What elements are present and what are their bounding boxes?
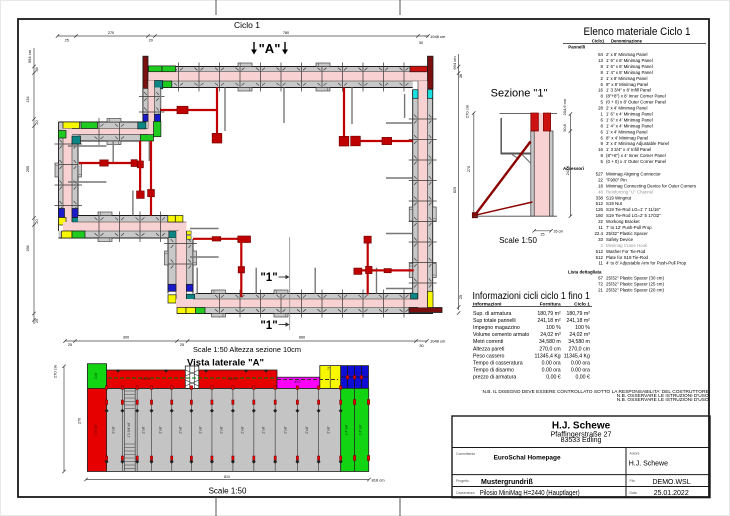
svg-text:S19 Tie-Rod LG=2' 5 17/32": S19 Tie-Rod LG=2' 5 17/32" xyxy=(606,213,661,218)
svg-text:16: 16 xyxy=(598,88,603,93)
svg-text:Metri correnti: Metri correnti xyxy=(473,339,503,345)
svg-text:527: 527 xyxy=(596,172,604,177)
svg-text:816 cm: 816 cm xyxy=(372,477,386,482)
svg-text:11: 11 xyxy=(598,225,603,230)
svg-text:"F900" Pin: "F900" Pin xyxy=(606,177,627,182)
svg-text:1048 cm: 1048 cm xyxy=(430,34,446,39)
svg-text:4' to 8' Adjustable Arm for Pu: 4' to 8' Adjustable Arm for Push-Pull Pr… xyxy=(606,261,687,266)
svg-text:0.00 ora: 0.00 ora xyxy=(571,367,590,373)
svg-text:1' 3 3/4" x 8' Infill Panel: 1' 3 3/4" x 8' Infill Panel xyxy=(606,88,651,93)
svg-text:Minimag Crane Hook: Minimag Crane Hook xyxy=(606,243,648,248)
svg-text:1'4"x8': 1'4"x8' xyxy=(359,424,363,435)
svg-text:1' 6" x 4' Minimag Panel: 1' 6" x 4' Minimag Panel xyxy=(606,112,653,117)
svg-text:24,02 m³: 24,02 m³ xyxy=(569,332,590,338)
svg-text:1' 4" x 4' Minimag Panel: 1' 4" x 4' Minimag Panel xyxy=(606,123,653,128)
svg-text:2'x8': 2'x8' xyxy=(327,426,331,434)
svg-text:126: 126 xyxy=(596,207,604,212)
svg-text:241,18 m²: 241,18 m² xyxy=(567,318,591,324)
svg-text:Reinforcing "U" Channel: Reinforcing "U" Channel xyxy=(606,189,653,194)
svg-text:1' 6" x 8' Minimag Panel: 1' 6" x 8' Minimag Panel xyxy=(606,58,653,63)
svg-text:Committente: Committente xyxy=(456,452,475,456)
svg-text:270: 270 xyxy=(467,166,471,172)
svg-text:660: 660 xyxy=(299,336,305,340)
svg-text:N.B. OSSERVARE LE ISTRUZIONI D: N.B. OSSERVARE LE ISTRUZIONI D'USO! xyxy=(617,397,710,403)
svg-text:34,580 m: 34,580 m xyxy=(539,339,561,345)
svg-text:994 cm: 994 cm xyxy=(27,49,32,63)
svg-text:8'x1'6": 8'x1'6" xyxy=(140,377,152,381)
svg-text:780: 780 xyxy=(283,31,289,35)
svg-text:Scale 1:50: Scale 1:50 xyxy=(209,487,247,496)
svg-text:1'3 3/4"x8': 1'3 3/4"x8' xyxy=(127,422,131,438)
svg-text:48: 48 xyxy=(598,189,603,194)
svg-text:2'x8': 2'x8' xyxy=(262,426,266,434)
svg-text:1'x8': 1'x8' xyxy=(94,372,98,379)
svg-text:EuroSchal Homepage: EuroSchal Homepage xyxy=(494,454,561,461)
svg-text:Ciclo1: Ciclo1 xyxy=(592,38,605,43)
svg-text:25/32" Plastic Spacer (25 cm): 25/32" Plastic Spacer (25 cm) xyxy=(606,281,664,286)
svg-text:8" x 4' Minimag Panel: 8" x 4' Minimag Panel xyxy=(606,135,648,140)
svg-text:160: 160 xyxy=(596,213,604,218)
svg-text:1' x 4' Minimag Panel: 1' x 4' Minimag Panel xyxy=(606,129,647,134)
svg-text:33: 33 xyxy=(598,237,603,242)
svg-text:1'6"x8': 1'6"x8' xyxy=(94,424,98,435)
svg-text:0,00 €: 0,00 € xyxy=(575,375,590,381)
svg-text:20: 20 xyxy=(35,120,39,124)
svg-text:34,580 m: 34,580 m xyxy=(568,339,590,345)
svg-text:Casseratura: Casseratura xyxy=(456,491,475,495)
svg-text:prezzo di armatura: prezzo di armatura xyxy=(473,375,516,381)
svg-text:25/32" Plastic Spacer (20 cm): 25/32" Plastic Spacer (20 cm) xyxy=(606,287,664,292)
svg-text:270,0 cm: 270,0 cm xyxy=(569,346,590,352)
svg-text:180,79 m²: 180,79 m² xyxy=(537,311,561,317)
svg-text:Denominazione: Denominazione xyxy=(611,38,643,43)
svg-text:Tempo di disarmo: Tempo di disarmo xyxy=(473,367,514,373)
svg-text:2'x8': 2'x8' xyxy=(219,426,223,434)
svg-text:S19 Tie-Rod LG=1' 7 11/16": S19 Tie-Rod LG=1' 7 11/16" xyxy=(606,207,661,212)
svg-text:Volume cemento armato: Volume cemento armato xyxy=(473,332,529,338)
svg-text:1048 cm: 1048 cm xyxy=(430,339,446,344)
svg-text:Minimag Connecting Device for: Minimag Connecting Device for Outer Corn… xyxy=(606,183,697,188)
svg-text:4'x1': 4'x1' xyxy=(294,380,302,384)
svg-text:0.00 ora: 0.00 ora xyxy=(542,360,561,366)
svg-text:20: 20 xyxy=(35,219,39,223)
svg-text:25.01.2022: 25.01.2022 xyxy=(654,490,689,497)
svg-text:338: 338 xyxy=(596,195,604,200)
svg-text:300: 300 xyxy=(123,336,129,340)
svg-text:512: 512 xyxy=(596,201,604,206)
svg-text:Minimag Aligning Connector: Minimag Aligning Connector xyxy=(606,172,661,177)
svg-text:28: 28 xyxy=(598,106,603,111)
svg-text:Progetto: Progetto xyxy=(456,479,469,483)
svg-text:22: 22 xyxy=(598,177,603,182)
svg-text:204,6 cm: 204,6 cm xyxy=(562,98,567,115)
svg-text:0.00 ora: 0.00 ora xyxy=(571,360,590,366)
svg-text:"1": "1" xyxy=(260,272,277,284)
svg-text:1'4"x8': 1'4"x8' xyxy=(345,424,349,435)
svg-text:Autore: Autore xyxy=(630,452,640,456)
svg-text:13: 13 xyxy=(598,58,603,63)
svg-text:Workong Bracket: Workong Bracket xyxy=(606,219,640,224)
svg-text:1' x 8' Minimag Panel: 1' x 8' Minimag Panel xyxy=(606,76,647,81)
svg-text:File: File xyxy=(630,479,636,483)
svg-text:S19 Wingnut: S19 Wingnut xyxy=(606,195,632,200)
svg-text:2': 2' xyxy=(327,367,330,371)
svg-text:0.00 ora: 0.00 ora xyxy=(542,367,561,373)
svg-text:S19 Nut: S19 Nut xyxy=(606,201,623,206)
svg-text:(8"+8") x 8' Inner Corner Pane: (8"+8") x 8' Inner Corner Panel xyxy=(606,94,666,99)
svg-text:25: 25 xyxy=(541,232,545,236)
svg-text:21: 21 xyxy=(598,287,603,292)
svg-text:100 %: 100 % xyxy=(546,325,561,331)
svg-text:2'x8': 2'x8' xyxy=(305,426,309,434)
svg-text:2'x8': 2'x8' xyxy=(159,426,163,434)
svg-text:512: 512 xyxy=(596,255,604,260)
svg-text:25/32" Plastic Spacer (30 cm): 25/32" Plastic Spacer (30 cm) xyxy=(606,275,664,280)
svg-text:Plate for S19 Tie-Rod: Plate for S19 Tie-Rod xyxy=(606,255,649,260)
svg-text:DEMO.WSL: DEMO.WSL xyxy=(653,479,691,486)
svg-text:2'x8': 2'x8' xyxy=(240,426,244,434)
svg-text:Pilosio MiniMag H=2440 (Hauptl: Pilosio MiniMag H=2440 (Hauptlager) xyxy=(480,490,580,497)
svg-text:3' x 4' Minimag Adjustable Pan: 3' x 4' Minimag Adjustable Panel xyxy=(606,141,669,146)
svg-text:(0 + 0) x 4' Outer Corner Pane: (0 + 0) x 4' Outer Corner Panel xyxy=(606,159,666,164)
svg-text:(0 + 0) x 8' Outer Corner Pane: (0 + 0) x 8' Outer Corner Panel xyxy=(606,100,666,105)
svg-text:2'x8': 2'x8' xyxy=(179,426,183,434)
svg-text:84: 84 xyxy=(598,52,603,57)
svg-text:83533 Edling: 83533 Edling xyxy=(561,437,602,444)
svg-text:0,00 €: 0,00 € xyxy=(546,375,561,381)
svg-text:2'x8': 2'x8' xyxy=(141,426,145,434)
svg-text:100 %: 100 % xyxy=(575,325,590,331)
svg-text:Mustergrundriß: Mustergrundriß xyxy=(481,479,533,486)
svg-text:20: 20 xyxy=(149,39,153,43)
svg-text:16: 16 xyxy=(598,147,603,152)
svg-text:2'x8': 2'x8' xyxy=(283,426,287,434)
svg-text:24,02 m³: 24,02 m³ xyxy=(540,332,561,338)
svg-text:36: 36 xyxy=(35,67,39,71)
svg-text:2'x8': 2'x8' xyxy=(112,426,116,434)
svg-text:67: 67 xyxy=(598,275,603,280)
svg-text:1' 6" x 8' Minimag Panel: 1' 6" x 8' Minimag Panel xyxy=(606,64,653,69)
svg-text:Impegno magazzino: Impegno magazzino xyxy=(473,325,520,331)
svg-text:"1": "1" xyxy=(260,320,277,332)
svg-text:Lista dettagliata: Lista dettagliata xyxy=(568,270,602,275)
svg-text:Accessori: Accessori xyxy=(563,166,584,171)
svg-text:2' x 8' Minimag Panel: 2' x 8' Minimag Panel xyxy=(606,52,647,57)
svg-text:25: 25 xyxy=(35,319,39,323)
svg-text:7' to 12' Push-Pull Prop: 7' to 12' Push-Pull Prop xyxy=(606,225,652,230)
svg-text:2' x 4' Minimag Panel: 2' x 4' Minimag Panel xyxy=(606,106,647,111)
svg-text:629: 629 xyxy=(453,187,457,193)
svg-text:1' 3 3/4" x 4' Infill Panel: 1' 3 3/4" x 4' Infill Panel xyxy=(606,147,651,152)
svg-text:180,79 m²: 180,79 m² xyxy=(567,311,591,317)
svg-text:134: 134 xyxy=(26,96,30,102)
svg-text:36: 36 xyxy=(459,74,463,78)
svg-text:72: 72 xyxy=(598,281,603,286)
svg-text:241,18 m²: 241,18 m² xyxy=(537,318,561,324)
svg-text:Ciclo 1: Ciclo 1 xyxy=(234,20,260,30)
svg-text:1' 6" x 4' Minimag Panel: 1' 6" x 4' Minimag Panel xyxy=(606,118,653,123)
svg-text:H.J. Schewe: H.J. Schewe xyxy=(629,460,668,467)
svg-text:26 cm: 26 cm xyxy=(554,229,564,233)
svg-text:Elenco materiale Ciclo 1: Elenco materiale Ciclo 1 xyxy=(584,26,691,38)
svg-text:Safety Device: Safety Device xyxy=(606,237,634,242)
svg-text:22: 22 xyxy=(598,219,603,224)
svg-text:Tempo di casseratura: Tempo di casseratura xyxy=(473,360,523,366)
svg-text:Scale 1:50: Scale 1:50 xyxy=(499,236,537,245)
svg-text:(8"+8") x 4' Inner Corner Pane: (8"+8") x 4' Inner Corner Panel xyxy=(606,153,666,158)
svg-text:Scale 1:50 Altezza sezione 1: Scale 1:50 Altezza sezione 10cm xyxy=(193,345,301,354)
svg-text:Informazioni cicli ciclo 1 fi: Informazioni cicli ciclo 1 fino 1 xyxy=(473,291,591,302)
svg-text:Peso cassero: Peso cassero xyxy=(473,353,505,359)
svg-text:Altezza pareti: Altezza pareti xyxy=(473,346,504,352)
svg-text:Sup. di armatura: Sup. di armatura xyxy=(473,311,511,317)
svg-text:994 cm: 994 cm xyxy=(452,56,457,70)
svg-text:512: 512 xyxy=(596,249,604,254)
svg-text:25: 25 xyxy=(459,295,463,299)
svg-text:270 cm: 270 cm xyxy=(464,104,469,118)
svg-text:Sup totale pannelli: Sup totale pannelli xyxy=(473,318,516,324)
svg-text:270 cm: 270 cm xyxy=(53,364,58,378)
svg-text:8'x1'6": 8'x1'6" xyxy=(227,377,239,381)
svg-text:25/32" Plastic Spacer: 25/32" Plastic Spacer xyxy=(606,231,648,236)
svg-text:11345,4 Kg: 11345,4 Kg xyxy=(564,353,590,359)
svg-text:Washer For Tie-Rod: Washer For Tie-Rod xyxy=(606,249,646,254)
svg-text:25: 25 xyxy=(68,343,72,347)
svg-text:810: 810 xyxy=(224,475,230,479)
svg-text:18: 18 xyxy=(598,183,603,188)
svg-text:50,8: 50,8 xyxy=(563,124,567,131)
svg-text:"A": "A" xyxy=(259,41,281,56)
svg-text:11: 11 xyxy=(598,261,603,266)
svg-text:30: 30 xyxy=(419,41,423,45)
svg-text:255: 255 xyxy=(26,166,30,172)
svg-text:Data: Data xyxy=(630,491,637,495)
svg-text:166: 166 xyxy=(26,245,30,251)
svg-text:11345,4 Kg: 11345,4 Kg xyxy=(535,353,561,359)
svg-text:30: 30 xyxy=(419,344,423,348)
svg-text:270: 270 xyxy=(108,31,114,35)
svg-text:270,0 cm: 270,0 cm xyxy=(539,346,560,352)
svg-text:270: 270 xyxy=(78,418,82,424)
svg-text:H.J. Schewe: H.J. Schewe xyxy=(552,421,611,432)
svg-text:1' 4" x 8' Minimag Panel: 1' 4" x 8' Minimag Panel xyxy=(606,70,653,75)
svg-text:22.4: 22.4 xyxy=(594,231,603,236)
svg-text:Sezione "1": Sezione "1" xyxy=(491,88,548,100)
svg-text:25: 25 xyxy=(65,39,69,43)
svg-text:25: 25 xyxy=(180,343,184,347)
svg-text:2'x8': 2'x8' xyxy=(199,426,203,434)
svg-text:8" x 8' Minimag Panel: 8" x 8' Minimag Panel xyxy=(606,82,648,87)
svg-text:Pannelli: Pannelli xyxy=(568,45,585,50)
